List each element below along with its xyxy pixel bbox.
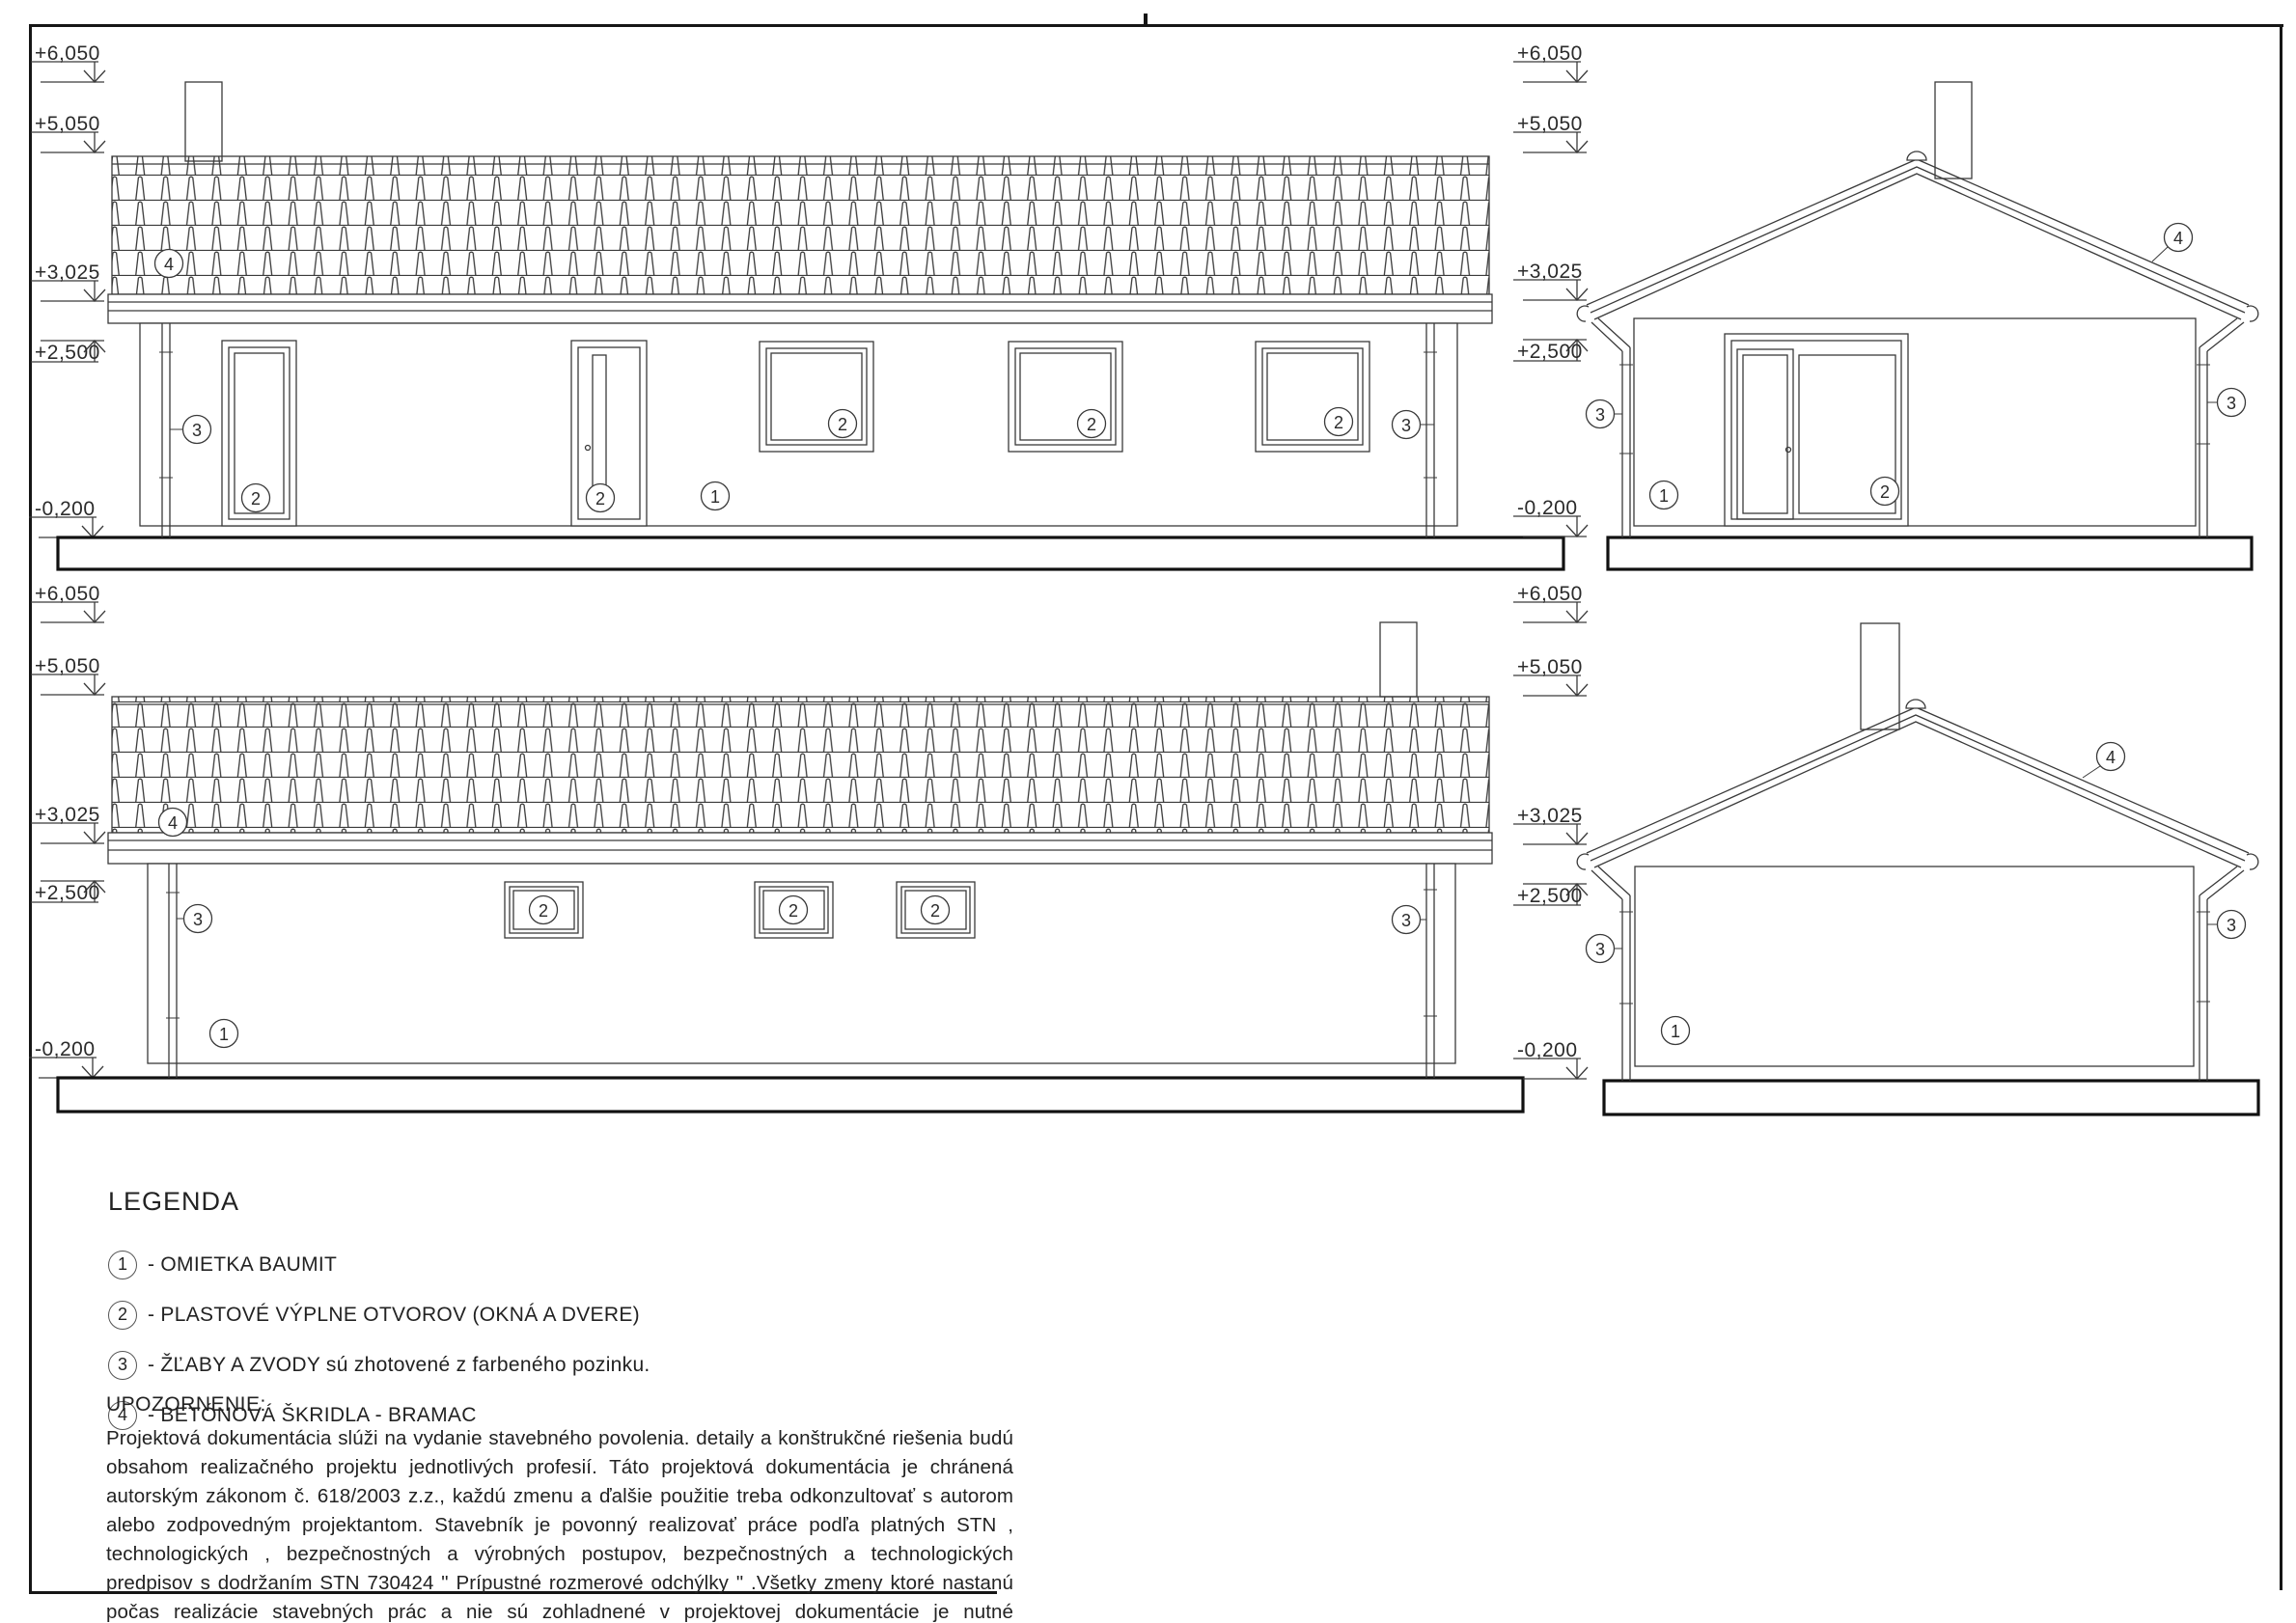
svg-text:2: 2 bbox=[788, 901, 798, 921]
downspout-right bbox=[2197, 318, 2244, 537]
rear-elevation: +6,050 +5,050 +3,025 +2,500 -0,200 bbox=[29, 583, 1523, 1112]
legend-item-openings: 2 - PLASTOVÉ VÝPLNE OTVOROV (OKNÁ A DVER… bbox=[108, 1300, 650, 1330]
gable-elevation-door: +6,050 +5,050 +3,025 +2,500 -0,200 bbox=[1513, 42, 2258, 569]
legend-text-2: - PLASTOVÉ VÝPLNE OTVOROV (OKNÁ A DVERE) bbox=[148, 1304, 640, 1327]
callout-plaster: 1 bbox=[1650, 481, 1678, 509]
callout-gutter: 3 bbox=[1587, 935, 1623, 963]
gable-roof bbox=[1577, 151, 2258, 321]
foundation-slab bbox=[58, 537, 1563, 569]
downspout-left bbox=[1591, 867, 1633, 1081]
level-label: +6,050 bbox=[35, 42, 100, 65]
ridge-finial bbox=[1907, 151, 1926, 160]
eave-fascia bbox=[108, 294, 1492, 323]
chimney bbox=[1380, 622, 1417, 697]
gutter-hook-left bbox=[1577, 306, 1589, 321]
wall bbox=[1634, 318, 2196, 526]
callout-gutter: 3 bbox=[2207, 911, 2246, 939]
level-label: +2,500 bbox=[35, 342, 100, 364]
callout-opening: 2 bbox=[780, 896, 808, 924]
legend-callout-1: 1 bbox=[108, 1251, 137, 1279]
level-marker bbox=[1513, 824, 1588, 844]
callout-opening: 2 bbox=[530, 896, 558, 924]
level-marker bbox=[31, 132, 105, 152]
callout-roof: 4 bbox=[2152, 224, 2193, 262]
level-label: +5,050 bbox=[1517, 113, 1583, 135]
notes-title: UPOZORNENIE: bbox=[106, 1393, 1013, 1417]
level-marker bbox=[31, 674, 105, 695]
level-label: +2,500 bbox=[1517, 885, 1583, 907]
svg-text:2: 2 bbox=[930, 901, 940, 921]
callout-plaster: 1 bbox=[210, 1020, 238, 1048]
chimney bbox=[185, 82, 222, 161]
foundation-slab bbox=[1604, 1081, 2258, 1114]
svg-text:2: 2 bbox=[1334, 413, 1343, 432]
callout-opening: 2 bbox=[1078, 410, 1106, 438]
level-label: -0,200 bbox=[1517, 1039, 1578, 1061]
svg-text:3: 3 bbox=[192, 421, 202, 440]
foundation-slab bbox=[1608, 537, 2252, 569]
svg-text:4: 4 bbox=[2173, 229, 2183, 248]
callout-gutter: 3 bbox=[2207, 389, 2246, 417]
drawing-sheet: +6,050 +5,050 +3,025 +2,500 -0,200 bbox=[0, 0, 2296, 1623]
eave-fascia bbox=[108, 833, 1492, 864]
level-label: +2,500 bbox=[1517, 341, 1583, 363]
callout-opening: 2 bbox=[1325, 408, 1353, 436]
level-label: +5,050 bbox=[35, 113, 100, 135]
chimney bbox=[1861, 623, 1899, 729]
gutter-hook-right bbox=[2247, 306, 2258, 321]
svg-text:3: 3 bbox=[1595, 940, 1605, 959]
level-marker bbox=[1513, 602, 1588, 622]
level-marker bbox=[29, 1058, 103, 1078]
level-label: +5,050 bbox=[35, 655, 100, 677]
window-2 bbox=[1009, 342, 1122, 452]
legend-item-plaster: 1 - OMIETKA BAUMIT bbox=[108, 1250, 650, 1279]
svg-text:4: 4 bbox=[164, 255, 174, 274]
legend-callout-3: 3 bbox=[108, 1351, 137, 1380]
level-marker bbox=[1513, 675, 1588, 696]
legend-title: LEGENDA bbox=[108, 1187, 650, 1217]
downspout-right bbox=[2197, 867, 2244, 1081]
svg-text:1: 1 bbox=[219, 1025, 229, 1044]
wall bbox=[1635, 867, 2194, 1066]
window-1 bbox=[760, 342, 873, 452]
level-marker bbox=[1513, 516, 1588, 536]
level-label: -0,200 bbox=[35, 1038, 96, 1060]
svg-text:2: 2 bbox=[251, 489, 261, 509]
level-label: +2,500 bbox=[35, 882, 100, 904]
svg-text:2: 2 bbox=[1087, 415, 1096, 434]
gable-roof bbox=[1577, 700, 2258, 869]
callout-opening: 2 bbox=[922, 896, 950, 924]
svg-text:3: 3 bbox=[2227, 394, 2236, 413]
window-3 bbox=[1256, 342, 1369, 452]
svg-text:4: 4 bbox=[2106, 748, 2116, 767]
svg-text:3: 3 bbox=[1595, 405, 1605, 425]
level-label: +3,025 bbox=[35, 804, 100, 826]
level-label: +6,050 bbox=[1517, 583, 1583, 605]
svg-text:2: 2 bbox=[539, 901, 548, 921]
svg-text:2: 2 bbox=[1880, 482, 1890, 502]
callout-roof: 4 bbox=[155, 250, 183, 278]
level-marker bbox=[31, 823, 105, 843]
gutter-hook-right bbox=[2247, 854, 2258, 869]
level-label: +3,025 bbox=[35, 261, 100, 284]
svg-text:3: 3 bbox=[2227, 916, 2236, 935]
level-marker bbox=[1513, 62, 1588, 82]
legend-text-1: - OMIETKA BAUMIT bbox=[148, 1253, 337, 1277]
svg-text:2: 2 bbox=[838, 415, 847, 434]
notes-body: Projektová dokumentácia slúži na vydanie… bbox=[106, 1424, 1013, 1623]
legend-callout-2: 2 bbox=[108, 1301, 137, 1330]
callout-gutter: 3 bbox=[1587, 400, 1623, 428]
svg-text:4: 4 bbox=[168, 813, 178, 833]
level-label: +3,025 bbox=[1517, 261, 1583, 283]
level-marker bbox=[29, 517, 103, 537]
ridge-finial bbox=[1906, 700, 1925, 708]
level-marker bbox=[1513, 132, 1588, 152]
callout-opening: 2 bbox=[829, 410, 857, 438]
legend-text-3: - ŽĽABY A ZVODY sú zhotovené z farbeného… bbox=[148, 1354, 650, 1377]
notes-block: UPOZORNENIE: Projektová dokumentácia slú… bbox=[106, 1393, 1013, 1623]
elevation-drawings: +6,050 +5,050 +3,025 +2,500 -0,200 bbox=[0, 0, 2296, 1177]
gable-elevation-plain: +6,050 +5,050 +3,025 +2,500 -0,200 bbox=[1513, 583, 2258, 1114]
level-label: +6,050 bbox=[1517, 42, 1583, 65]
front-elevation: +6,050 +5,050 +3,025 +2,500 -0,200 bbox=[29, 42, 1563, 569]
callout-opening: 2 bbox=[242, 484, 270, 512]
level-marker bbox=[1513, 280, 1588, 300]
callout-plaster: 1 bbox=[702, 482, 730, 510]
callout-roof: 4 bbox=[159, 809, 187, 837]
level-marker bbox=[31, 281, 105, 301]
roof-tiles bbox=[112, 697, 1489, 833]
svg-text:3: 3 bbox=[193, 910, 203, 929]
svg-text:2: 2 bbox=[595, 489, 605, 509]
level-label: +6,050 bbox=[35, 583, 100, 605]
level-label: +3,025 bbox=[1517, 805, 1583, 827]
foundation-slab bbox=[58, 1078, 1523, 1112]
roof-tiles bbox=[112, 156, 1489, 294]
svg-text:1: 1 bbox=[710, 487, 720, 507]
callout-opening: 2 bbox=[587, 484, 615, 512]
chimney bbox=[1935, 82, 1972, 179]
svg-text:3: 3 bbox=[1401, 911, 1411, 930]
level-label: +5,050 bbox=[1517, 656, 1583, 678]
level-marker bbox=[31, 602, 105, 622]
level-label: -0,200 bbox=[35, 498, 96, 520]
level-marker bbox=[31, 62, 105, 82]
svg-text:1: 1 bbox=[1659, 486, 1669, 506]
level-marker bbox=[1513, 1059, 1588, 1079]
svg-text:1: 1 bbox=[1671, 1022, 1680, 1041]
svg-text:3: 3 bbox=[1401, 416, 1411, 435]
level-label: -0,200 bbox=[1517, 497, 1578, 519]
callout-opening: 2 bbox=[1871, 478, 1899, 506]
callout-roof: 4 bbox=[2083, 743, 2125, 779]
callout-plaster: 1 bbox=[1662, 1017, 1690, 1045]
legend-item-gutters: 3 - ŽĽABY A ZVODY sú zhotovené z farbené… bbox=[108, 1350, 650, 1380]
gutter-hook-left bbox=[1577, 854, 1589, 869]
